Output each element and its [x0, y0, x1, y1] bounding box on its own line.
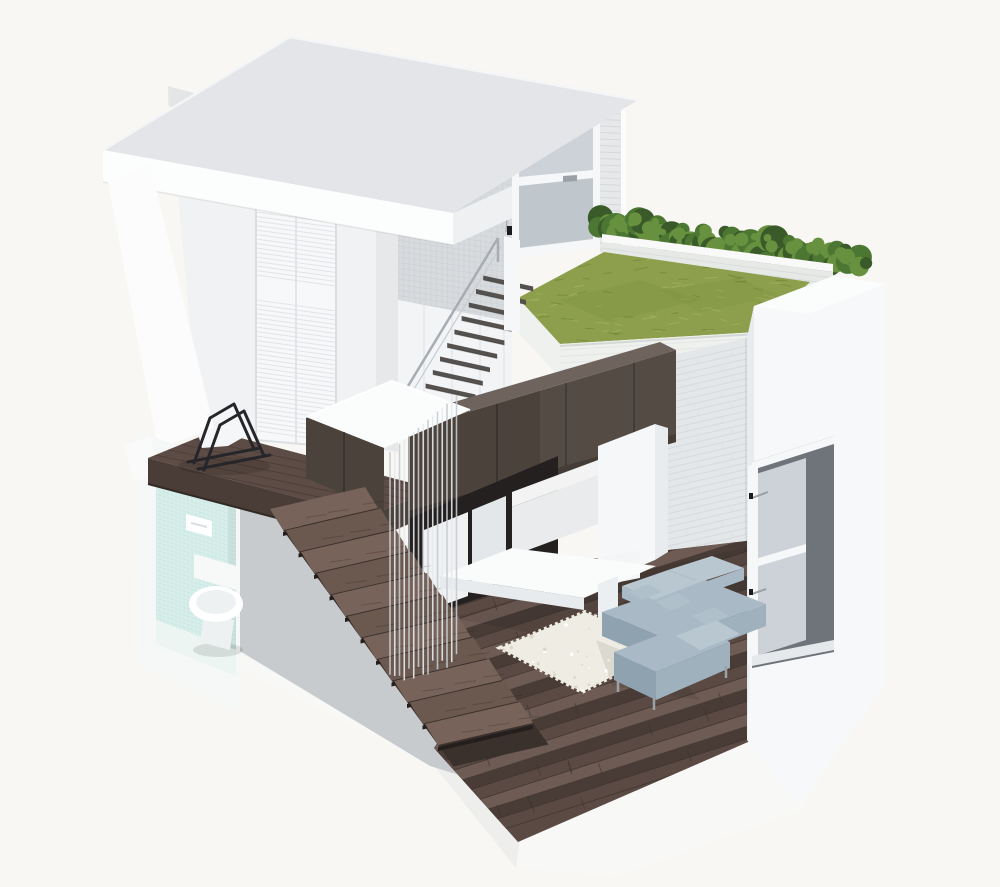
rug-speckle — [510, 646, 513, 649]
rug-speckle — [532, 661, 534, 663]
render-viewport — [0, 0, 1000, 887]
rug-speckle — [553, 673, 556, 676]
rug-speckle — [588, 683, 591, 686]
window-hardware — [749, 493, 753, 499]
hedge-sprig — [725, 234, 737, 246]
rug-speckle — [586, 655, 588, 657]
rug-speckle — [564, 623, 568, 627]
grass-blade — [770, 283, 784, 284]
grass-blade — [526, 300, 539, 301]
door-handle — [563, 175, 577, 182]
terrace-door-glass-lower — [519, 178, 593, 248]
hedge-sprig — [735, 233, 749, 247]
rug-speckle — [577, 650, 579, 652]
chair-shadow — [178, 457, 270, 475]
support-column-side — [655, 424, 668, 560]
rug-speckle — [537, 662, 540, 665]
rug-speckle — [543, 648, 547, 652]
cutaway-render — [0, 0, 1000, 887]
rug-speckle — [581, 664, 583, 666]
cable-anchor-hardware — [507, 226, 512, 235]
hedge-sprig — [842, 249, 853, 260]
rug-speckle — [589, 667, 591, 669]
hedge-sprig — [785, 241, 798, 254]
hedge-sprig — [609, 218, 619, 228]
hedge-sprig — [628, 220, 635, 227]
grass-blade — [678, 279, 688, 280]
rug-speckle — [617, 643, 619, 645]
hedge-sprig — [820, 248, 827, 255]
rug-speckle — [570, 653, 573, 656]
hedge-sprig — [766, 240, 778, 252]
window-hardware — [749, 589, 753, 595]
hedge-sprig — [673, 227, 686, 240]
rug-speckle — [553, 671, 555, 673]
rug-speckle — [573, 676, 576, 679]
hedge-shrub — [860, 257, 872, 269]
hedge-sprig — [764, 234, 772, 242]
grass-blade — [603, 273, 611, 274]
hedge-sprig — [699, 225, 712, 238]
hedge-sprig — [659, 229, 666, 236]
window — [748, 436, 834, 668]
stair-newel-post — [504, 236, 520, 332]
hedge-sprig — [751, 233, 759, 241]
toilet-seat — [196, 590, 236, 614]
rug-speckle — [588, 628, 590, 630]
hedge-sprig — [652, 218, 660, 226]
